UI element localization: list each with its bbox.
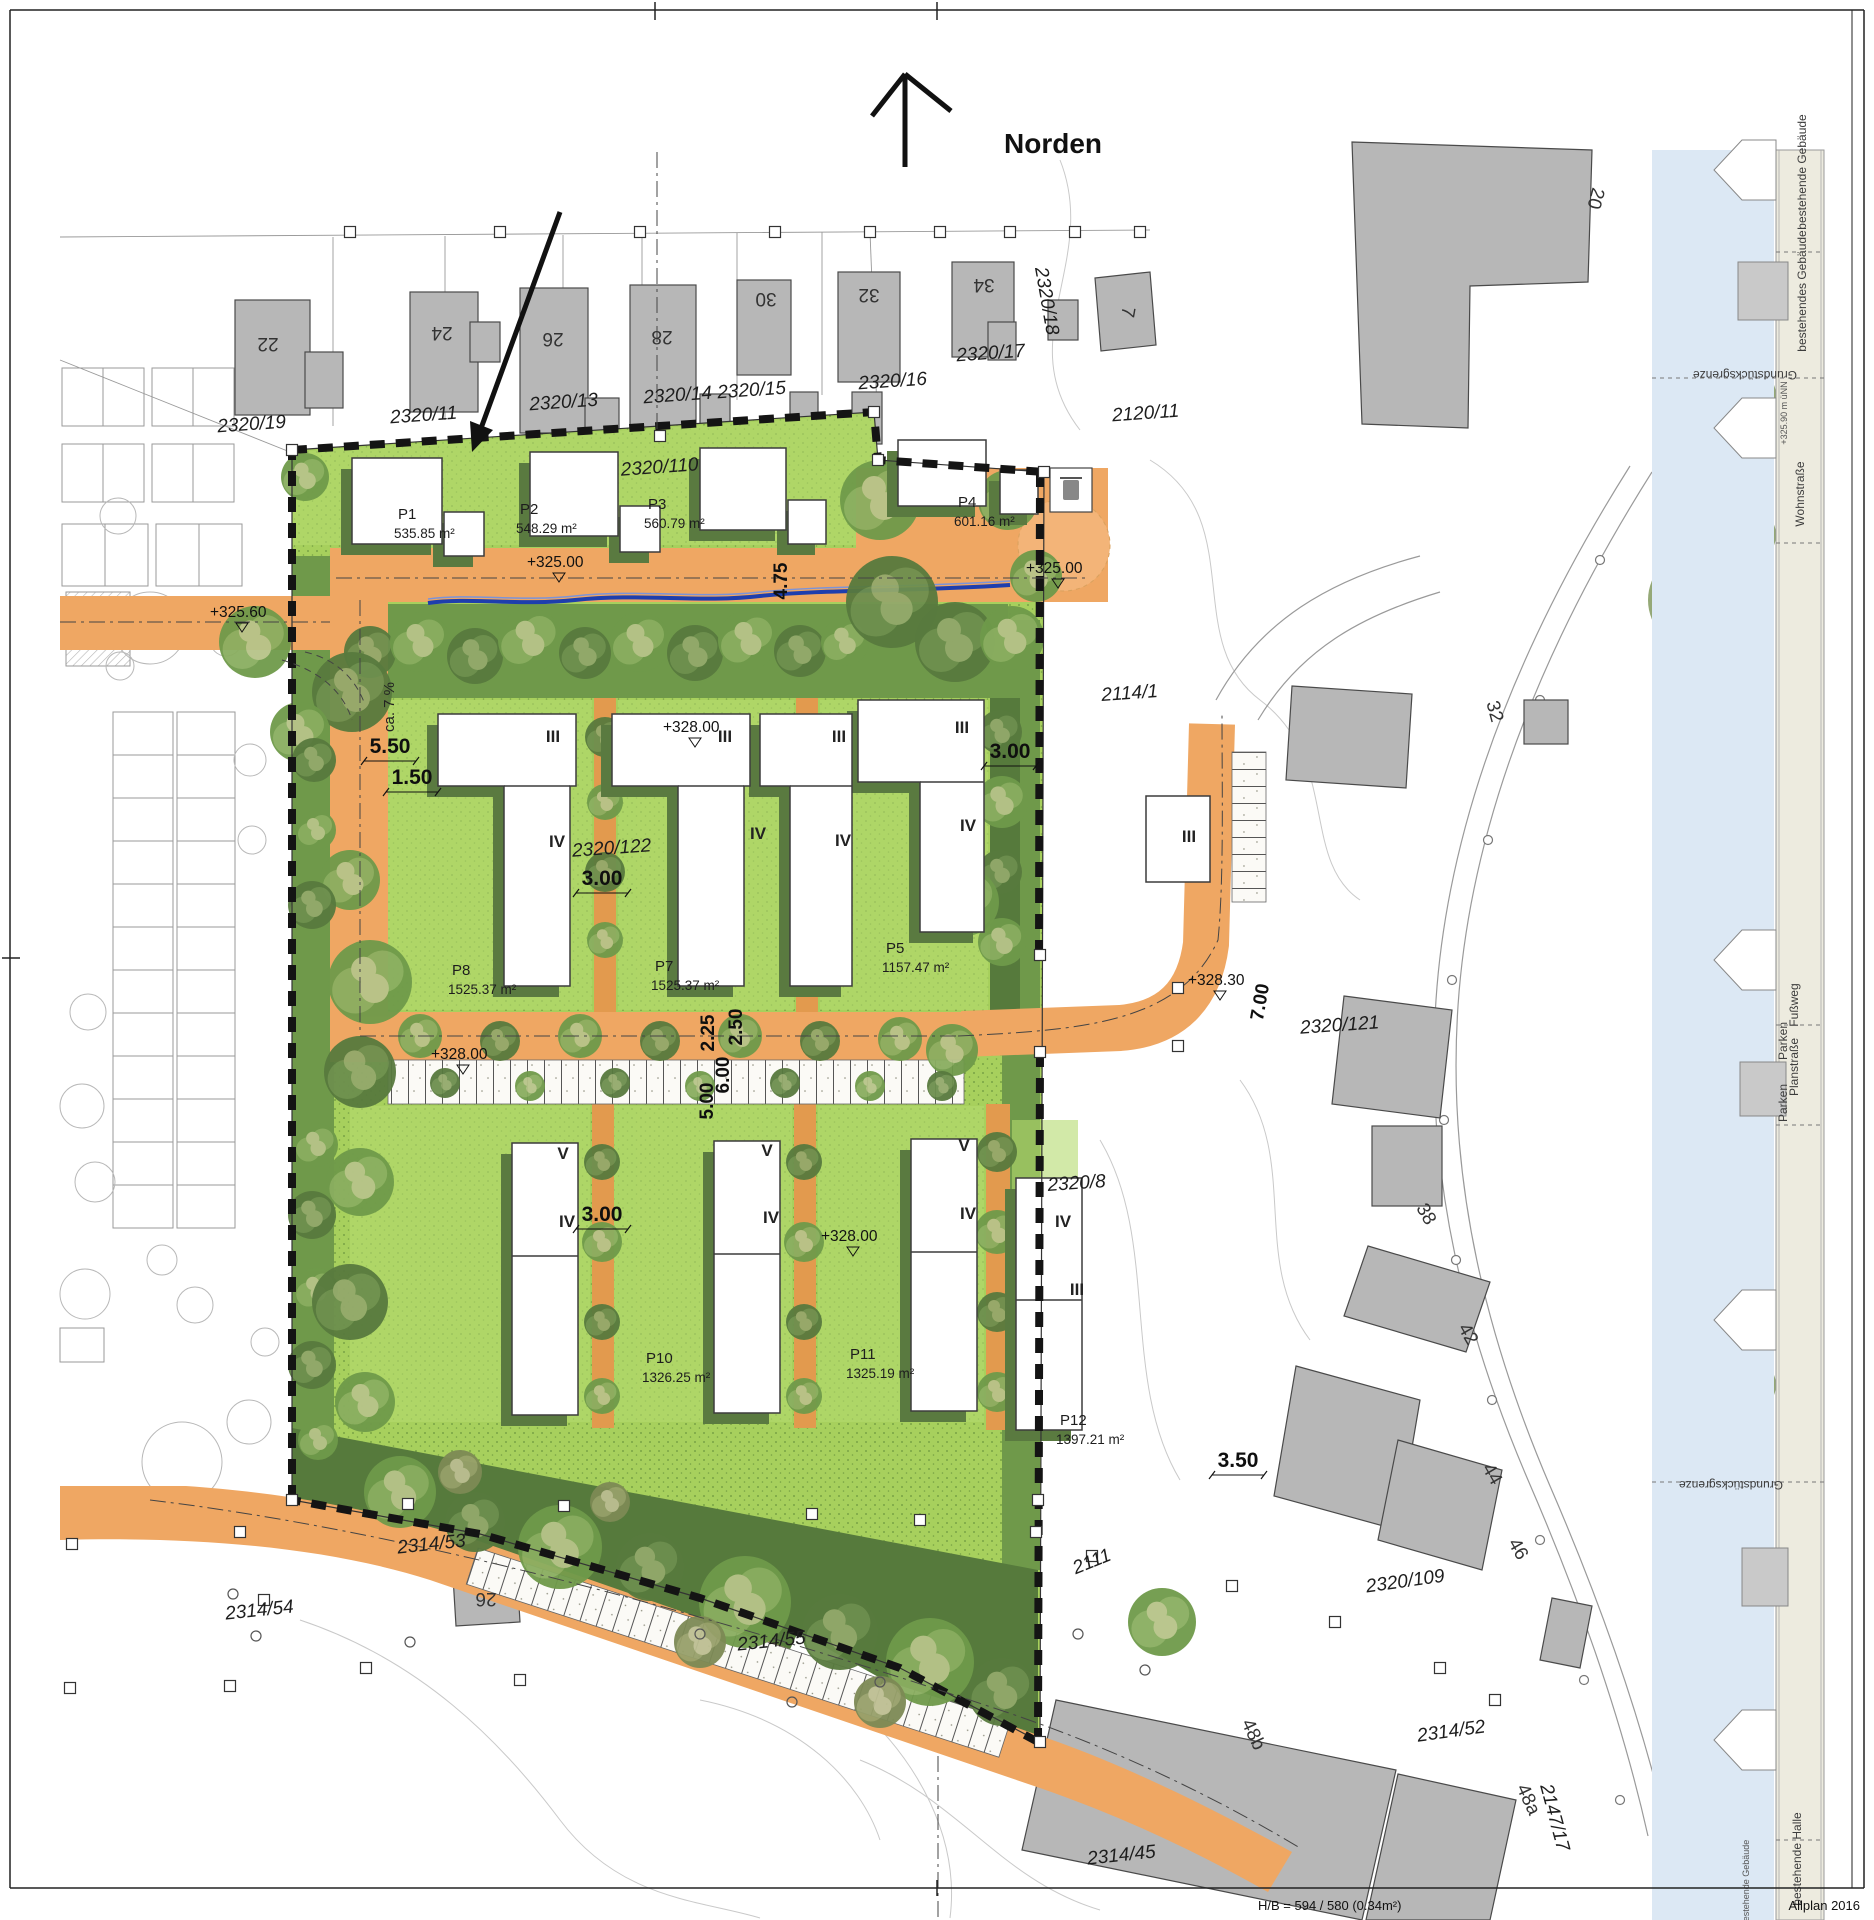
- boundary-point-marker: [225, 1681, 236, 1692]
- parcel-label-P2: P2: [520, 501, 538, 518]
- label-IV-64: IV: [835, 831, 852, 850]
- tree-icon: [590, 1482, 630, 1522]
- site-plan-page: 2320/192320/112320/132320/142320/152320/…: [0, 0, 1874, 1920]
- boundary-point-marker: [1005, 227, 1016, 238]
- tree-icon: [674, 1616, 726, 1668]
- tree-icon: [980, 606, 1044, 670]
- label-ca-7--51: ca. 7 %: [381, 682, 398, 732]
- tree-icon: [584, 1378, 620, 1414]
- tree-icon: [559, 627, 611, 679]
- tree-icon: [977, 1132, 1017, 1172]
- label-III-59: III: [546, 727, 560, 746]
- label-III-75: III: [1070, 1280, 1084, 1299]
- label-V-68: V: [557, 1144, 569, 1163]
- label-2-50-46: 2.50: [726, 1009, 747, 1046]
- tree-icon: [498, 608, 562, 672]
- building-east-white: [1146, 796, 1210, 882]
- boundary-point-marker: [635, 227, 646, 238]
- tree-icon: [600, 1068, 630, 1098]
- label-bestehende-Geb-ude-87: bestehende Gebäude: [1741, 1840, 1751, 1920]
- house-p4-garage: [1000, 470, 1038, 514]
- parcel-area-P5: 1157.47 m²: [882, 960, 950, 975]
- label-IV-69: IV: [559, 1212, 576, 1231]
- house-p3-garage: [788, 500, 826, 544]
- tree-icon: [390, 612, 450, 672]
- tree-icon: [298, 1420, 338, 1460]
- label-IV-74: IV: [1055, 1212, 1072, 1231]
- label--328-30-58: +328.30: [1188, 972, 1245, 989]
- boundary-point-marker: [865, 227, 876, 238]
- tree-icon: [294, 1123, 338, 1167]
- label-3-00-42: 3.00: [990, 740, 1031, 763]
- label-1-50-40: 1.50: [392, 766, 433, 789]
- tree-icon: [324, 1036, 396, 1108]
- boundary-point-marker: [1035, 1047, 1046, 1058]
- label--328-00-55: +328.00: [663, 719, 720, 736]
- parcel-label-P4: P4: [958, 494, 976, 511]
- parcel-area-P12: 1397.21 m²: [1056, 1432, 1125, 1447]
- boundary-point-marker: [287, 1495, 298, 1506]
- boundary-point-marker: [403, 1499, 414, 1510]
- tree-icon: [927, 1071, 957, 1101]
- street-elevation-strip: [1652, 140, 1824, 1920]
- label-2-25-45: 2.25: [698, 1014, 719, 1051]
- parcel-area-P4: 601.16 m²: [954, 514, 1015, 529]
- waste-bin-station: [1050, 468, 1092, 512]
- label-Fu-weg-81: Fußweg: [1787, 983, 1801, 1026]
- apartment-block-6: [714, 1141, 780, 1413]
- label-bestehendes-Geb-ude-77: bestehendes Gebäude: [1795, 230, 1809, 352]
- boundary-point-marker: [1330, 1617, 1341, 1628]
- boundary-point-marker: [287, 445, 298, 456]
- label-V-72: V: [958, 1136, 970, 1155]
- parcel-label-P7: P7: [655, 958, 673, 975]
- parcel-area-P11: 1325.19 m²: [846, 1366, 915, 1381]
- label-IV-62: IV: [750, 824, 767, 843]
- label-2114-1-11: 2114/1: [1100, 681, 1159, 706]
- boundary-point-marker: [345, 227, 356, 238]
- parcel-label-P10: P10: [646, 1350, 673, 1367]
- boundary-point-marker: [770, 227, 781, 238]
- boundary-point-marker: [361, 1663, 372, 1674]
- label-5-00-48: 5.00: [697, 1083, 718, 1120]
- tree-icon: [784, 1222, 824, 1262]
- boundary-point-marker: [1490, 1695, 1501, 1706]
- boundary-point-marker: [235, 1527, 246, 1538]
- label--325-00-54: +325.00: [1026, 560, 1083, 577]
- label-Parken-84: Parken: [1776, 1084, 1790, 1122]
- boundary-point-marker: [655, 431, 666, 442]
- tree-icon: [292, 738, 336, 782]
- waste-bin-icon: [1063, 480, 1079, 500]
- parcel-area-P2: 548.29 m²: [516, 521, 577, 536]
- tree-icon: [312, 1264, 388, 1340]
- boundary-point-marker: [1039, 467, 1050, 478]
- boundary-point-marker: [67, 1539, 78, 1550]
- boundary-point-marker: [559, 1501, 570, 1512]
- parking-east: [1232, 752, 1266, 902]
- footer-app-credit: Allplan 2016: [1788, 1898, 1860, 1913]
- label-bestehende-Halle-86: bestehende Halle: [1790, 1812, 1804, 1906]
- label-24-23: 24: [431, 322, 453, 343]
- label-IV-60: IV: [549, 832, 566, 851]
- label--328-00-57: +328.00: [821, 1228, 878, 1245]
- tree-icon: [926, 1024, 978, 1076]
- tree-icon: [786, 1304, 822, 1340]
- parcel-label-P1: P1: [398, 506, 416, 523]
- boundary-point-marker: [935, 227, 946, 238]
- tree-icon: [1128, 1588, 1196, 1656]
- tree-icon: [335, 1372, 395, 1432]
- tree-icon: [584, 1304, 620, 1340]
- label-Wohnstra-e-80: Wohnstraße: [1793, 461, 1807, 526]
- parcel-area-P3: 560.79 m²: [644, 516, 705, 531]
- tree-icon: [582, 1222, 622, 1262]
- tree-icon: [878, 1017, 922, 1061]
- label-3-00-41: 3.00: [582, 867, 623, 890]
- parcel-label-P5: P5: [886, 940, 904, 957]
- boundary-point-marker: [1227, 1581, 1238, 1592]
- parcel-label-P8: P8: [452, 962, 470, 979]
- boundary-point-marker: [1033, 1495, 1044, 1506]
- tree-icon: [855, 1071, 885, 1101]
- tree-icon: [774, 625, 826, 677]
- label-III-61: III: [718, 727, 732, 746]
- label-4-75-50: 4.75: [771, 562, 792, 599]
- label--325-90-m-NN-79: +325.90 m üNN: [1779, 381, 1789, 444]
- tree-icon: [786, 1144, 822, 1180]
- label-34-28: 34: [973, 274, 995, 295]
- label-3-50-44: 3.50: [1218, 1449, 1259, 1472]
- tree-icon: [718, 610, 778, 670]
- apartment-block-5: [512, 1143, 578, 1415]
- tree-icon: [968, 1658, 1036, 1726]
- parcel-area-P10: 1326.25 m²: [642, 1370, 711, 1385]
- boundary-point-marker: [65, 1683, 76, 1694]
- label-III-63: III: [832, 727, 846, 746]
- tree-icon: [770, 1068, 800, 1098]
- boundary-point-marker: [1070, 227, 1081, 238]
- tree-icon: [584, 1144, 620, 1180]
- apartment-block-8: [1016, 1178, 1082, 1430]
- apartment-block-7: [911, 1139, 977, 1411]
- label-30-26: 30: [755, 288, 776, 309]
- site-plan-drawing: 2320/192320/112320/132320/142320/152320/…: [0, 0, 1874, 1920]
- tree-icon: [610, 612, 670, 672]
- boundary-point-marker: [915, 1515, 926, 1526]
- label-28-25: 28: [651, 326, 672, 347]
- tree-icon: [296, 810, 336, 850]
- label-26-24: 26: [542, 328, 563, 349]
- label-Grundst-cksgrenze-78: Grundstücksgrenze: [1693, 368, 1797, 382]
- boundary-point-marker: [1035, 950, 1046, 961]
- label-2320-8-13: 2320/8: [1046, 1171, 1107, 1196]
- parcel-label-P3: P3: [648, 496, 666, 513]
- boundary-point-marker: [1031, 1527, 1042, 1538]
- parcel-area-P7: 1525.37 m²: [651, 978, 720, 993]
- tree-icon: [447, 628, 503, 684]
- tree-icon: [326, 1148, 394, 1216]
- label-bestehende-Geb-ude-76: bestehende Gebäude: [1795, 114, 1809, 230]
- parcel-area-P8: 1525.37 m²: [448, 982, 517, 997]
- boundary-point-marker: [515, 1675, 526, 1686]
- tree-icon: [328, 940, 412, 1024]
- label-32-27: 32: [858, 284, 879, 305]
- parcel-label-P11: P11: [850, 1346, 876, 1363]
- boundary-point-marker: [869, 407, 880, 418]
- footer-scale-info: H/B = 594 / 580 (0.34m²): [1258, 1898, 1401, 1913]
- tree-icon: [518, 1505, 602, 1589]
- tree-icon: [515, 1071, 545, 1101]
- label-III-65: III: [955, 718, 969, 737]
- label-Grundst-cksgrenze-85: Grundstücksgrenze: [1679, 1478, 1783, 1492]
- tree-icon: [667, 625, 723, 681]
- tree-icon: [438, 1450, 482, 1494]
- boundary-point-marker: [1173, 983, 1184, 994]
- label-3-00-43: 3.00: [582, 1203, 623, 1226]
- tree-icon: [800, 1021, 840, 1061]
- label-22-22: 22: [257, 333, 278, 354]
- label-IV-66: IV: [960, 816, 977, 835]
- parcel-label-P12: P12: [1060, 1412, 1087, 1429]
- boundary-point-marker: [1135, 227, 1146, 238]
- house-p3-main: [700, 448, 786, 530]
- label--325-00-53: +325.00: [527, 554, 584, 571]
- label-26-38: 26: [475, 1588, 496, 1609]
- label-IV-73: IV: [960, 1204, 977, 1223]
- boundary-point-marker: [807, 1509, 818, 1520]
- boundary-point-marker: [1173, 1041, 1184, 1052]
- tree-icon: [430, 1068, 460, 1098]
- label-IV-71: IV: [763, 1208, 780, 1227]
- parcel-area-P1: 535.85 m²: [394, 526, 455, 541]
- north-label: Norden: [1004, 128, 1102, 159]
- tree-icon: [587, 922, 623, 958]
- tree-icon: [786, 1378, 822, 1414]
- label-5-50-39: 5.50: [370, 735, 411, 758]
- boundary-point-marker: [495, 227, 506, 238]
- label-V-70: V: [761, 1141, 773, 1160]
- tree-icon: [854, 1676, 906, 1728]
- boundary-point-marker: [1435, 1663, 1446, 1674]
- boundary-point-marker: [1035, 1737, 1046, 1748]
- label-III-67: III: [1182, 827, 1196, 846]
- label--325-60-52: +325.60: [210, 604, 267, 621]
- boundary-point-marker: [873, 455, 884, 466]
- label--328-00-56: +328.00: [431, 1046, 488, 1063]
- tree-icon: [640, 1021, 680, 1061]
